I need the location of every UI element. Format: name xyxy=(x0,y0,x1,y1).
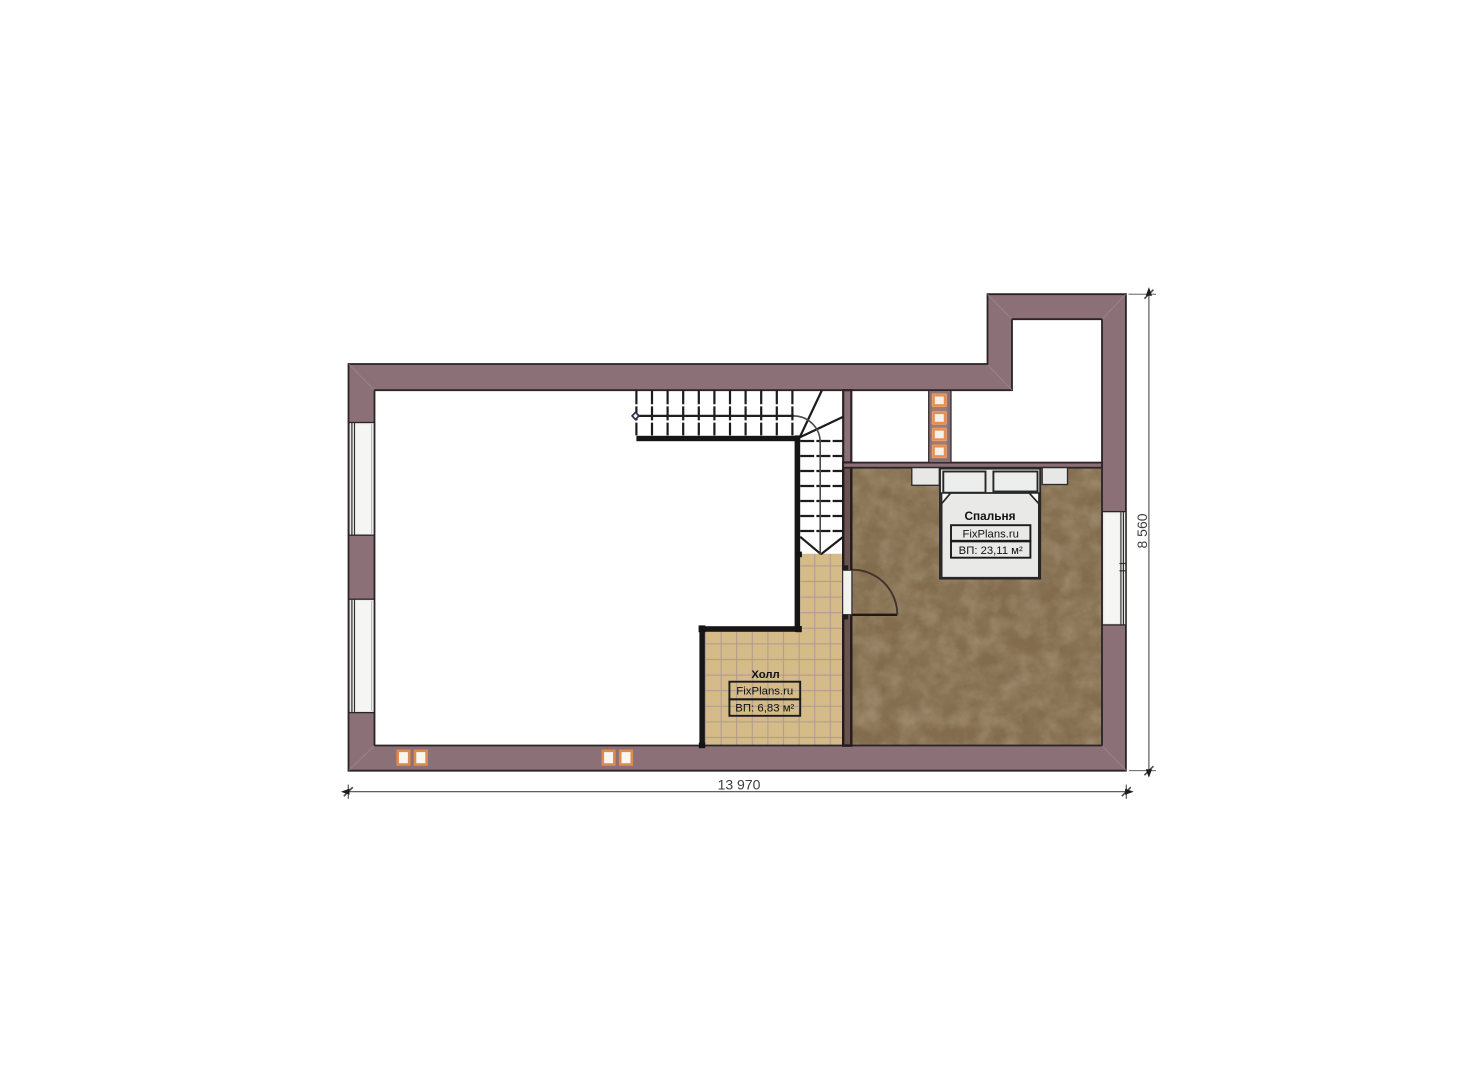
svg-text:8 560: 8 560 xyxy=(1134,513,1150,548)
svg-text:FixPlans.ru: FixPlans.ru xyxy=(736,686,793,698)
svg-text:ВП: 23,11 м²: ВП: 23,11 м² xyxy=(959,545,1023,557)
svg-text:ВП: 6,83 м²: ВП: 6,83 м² xyxy=(735,703,794,715)
svg-text:Спальня: Спальня xyxy=(965,509,1016,523)
svg-text:13 970: 13 970 xyxy=(718,777,761,793)
svg-text:Холл: Холл xyxy=(751,669,779,681)
svg-text:FixPlans.ru: FixPlans.ru xyxy=(962,529,1019,541)
